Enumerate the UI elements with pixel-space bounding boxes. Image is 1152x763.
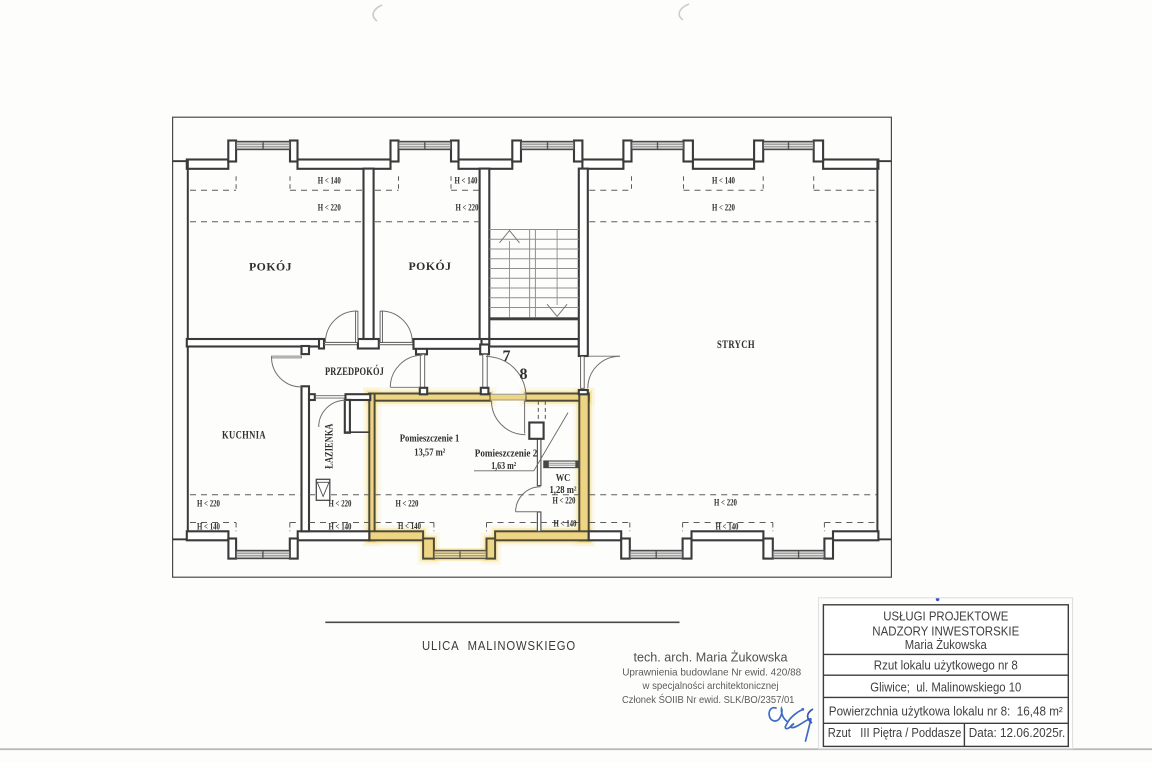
svg-text:USŁUGI PROJEKTOWE: USŁUGI PROJEKTOWE <box>883 609 1008 624</box>
svg-text:Pomieszczenie 1: Pomieszczenie 1 <box>400 433 460 445</box>
svg-text:Członek ŚOIIB Nr ewid. SLK/BO/: Członek ŚOIIB Nr ewid. SLK/BO/2357/01 <box>622 693 795 706</box>
svg-text:POKÓJ: POKÓJ <box>249 259 292 273</box>
svg-text:H < 220: H < 220 <box>456 203 479 213</box>
svg-text:H < 220: H < 220 <box>197 499 220 509</box>
svg-text:Pomieszczenie 2: Pomieszczenie 2 <box>475 448 538 460</box>
svg-text:H < 220: H < 220 <box>329 499 352 509</box>
svg-text:WC: WC <box>556 472 571 484</box>
svg-text:13,57 m²: 13,57 m² <box>414 447 446 459</box>
svg-text:7: 7 <box>503 348 511 365</box>
svg-text:H < 220: H < 220 <box>712 203 735 213</box>
svg-text:ULICA MALINOWSKIEGO: ULICA MALINOWSKIEGO <box>422 638 576 653</box>
svg-text:8: 8 <box>520 366 528 383</box>
svg-text:1,28 m²: 1,28 m² <box>550 485 577 496</box>
svg-text:H < 140: H < 140 <box>318 176 341 186</box>
svg-text:w specjalności architektoniczn: w specjalności architektonicznej <box>642 680 779 692</box>
svg-text:H < 220: H < 220 <box>318 203 341 213</box>
svg-text:Uprawnienia budowlane Nr ewid.: Uprawnienia budowlane Nr ewid. 420/88 <box>622 666 801 678</box>
svg-text:Data: 12.06.2025r.: Data: 12.06.2025r. <box>969 726 1066 740</box>
svg-text:H < 140: H < 140 <box>716 521 739 531</box>
svg-text:tech. arch. Maria Żukowska: tech. arch. Maria Żukowska <box>634 650 788 664</box>
svg-text:Maria Żukowska: Maria Żukowska <box>905 638 987 652</box>
svg-text:KUCHNIA: KUCHNIA <box>222 428 266 442</box>
svg-text:Rzut lokalu użytkowego nr 8: Rzut lokalu użytkowego nr 8 <box>874 658 1018 673</box>
svg-text:H < 140: H < 140 <box>455 176 478 186</box>
svg-text:POKÓJ: POKÓJ <box>409 259 452 273</box>
svg-text:H < 220: H < 220 <box>396 499 419 509</box>
svg-text:ŁAZIENKA: ŁAZIENKA <box>322 423 336 468</box>
svg-text:H < 220: H < 220 <box>553 495 576 505</box>
svg-text:STRYCH: STRYCH <box>717 337 755 351</box>
svg-text:NADZORY INWESTORSKIE: NADZORY INWESTORSKIE <box>872 623 1019 638</box>
svg-text:H < 140: H < 140 <box>329 522 352 532</box>
svg-text:Rzut III Piętra / Poddasze: Rzut III Piętra / Poddasze <box>828 726 962 740</box>
svg-text:Powierzchnia użytkowa lokalu n: Powierzchnia użytkowa lokalu nr 8: 16,48… <box>829 705 1063 719</box>
svg-text:H < 140: H < 140 <box>197 522 220 532</box>
svg-text:H < 140: H < 140 <box>554 519 577 529</box>
svg-text:H < 140: H < 140 <box>712 176 735 186</box>
svg-text:PRZEDPOKÓJ: PRZEDPOKÓJ <box>325 364 384 378</box>
svg-text:Gliwice; ul. Malinowskiego 10: Gliwice; ul. Malinowskiego 10 <box>870 680 1021 695</box>
svg-text:H < 220: H < 220 <box>714 498 737 508</box>
svg-text:1,63 m²: 1,63 m² <box>491 460 517 472</box>
svg-text:H < 140: H < 140 <box>398 521 421 531</box>
